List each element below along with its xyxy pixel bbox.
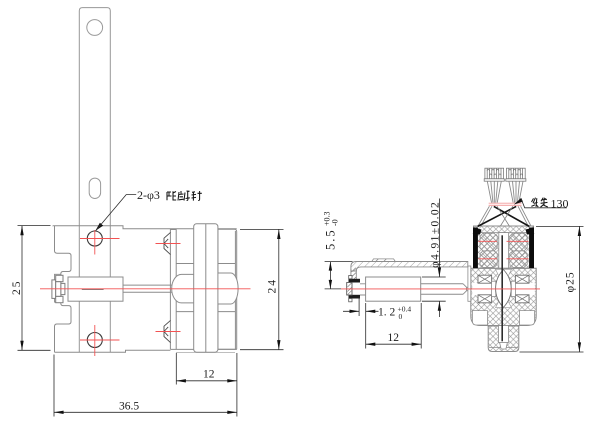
svg-text:130: 130 (551, 197, 569, 211)
svg-text:2-φ3: 2-φ3 (137, 188, 160, 202)
svg-text:-0: -0 (331, 219, 340, 226)
svg-text:12: 12 (203, 369, 215, 381)
svg-text:36.5: 36.5 (119, 401, 139, 413)
svg-text:12: 12 (388, 332, 400, 344)
svg-text:5.5: 5.5 (324, 228, 338, 250)
svg-text:0: 0 (399, 312, 403, 321)
svg-text:φ25: φ25 (565, 271, 577, 292)
svg-text:25: 25 (11, 280, 23, 296)
svg-text:1. 2: 1. 2 (378, 307, 396, 319)
svg-text:φ4.91±0.02: φ4.91±0.02 (430, 201, 442, 268)
svg-text:24: 24 (267, 278, 279, 294)
